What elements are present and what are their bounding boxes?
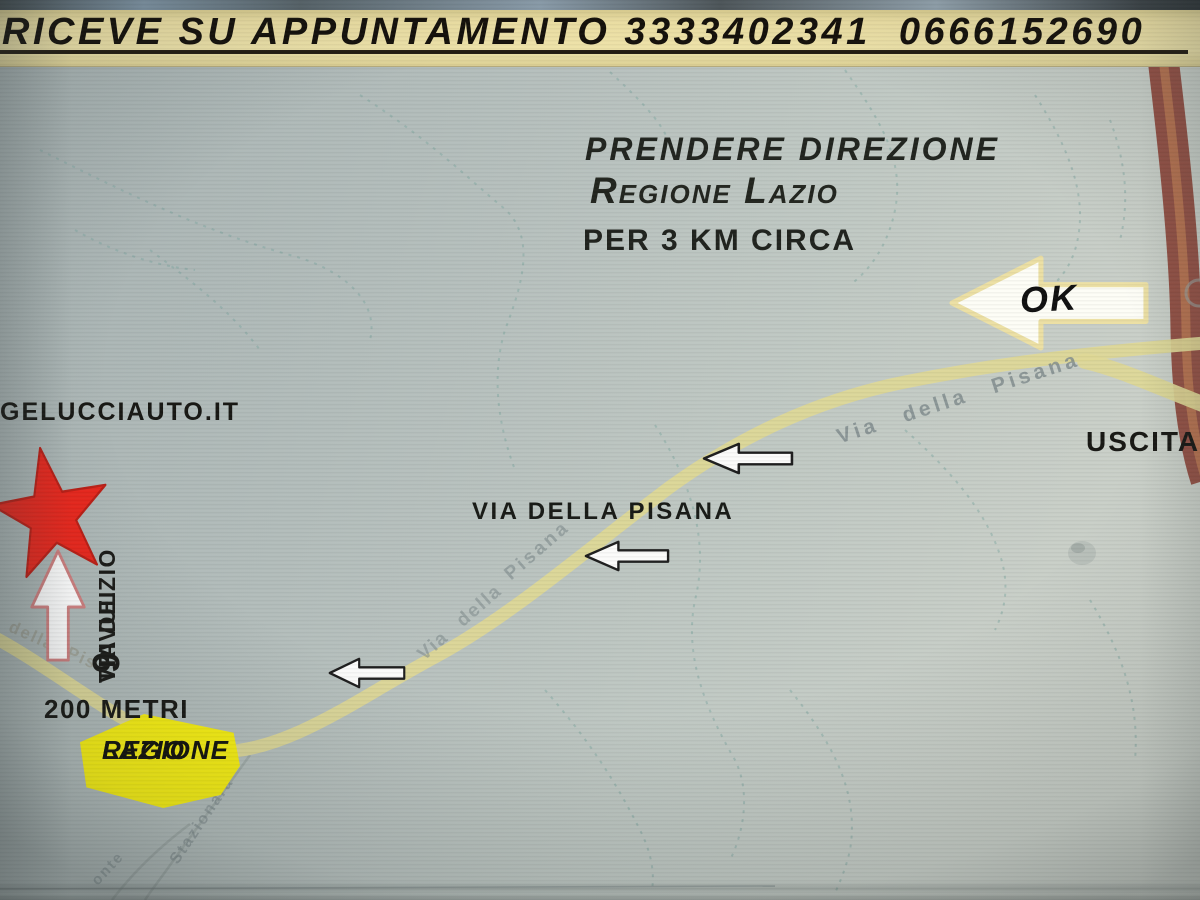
banner-underline: [0, 50, 1188, 54]
direction-line3: PER 3 KM CIRCA: [583, 224, 856, 258]
badge-line2: LAZIO: [102, 735, 185, 766]
direction-line1: PRENDERE DIREZIONE: [585, 131, 1000, 168]
map-symbol-smudge-core: [1071, 543, 1085, 553]
distance-label: 200 METRI: [44, 694, 189, 725]
uscita-label: USCITA: [1086, 426, 1200, 458]
street-number: 9: [93, 652, 122, 683]
via-dei-trivulzio-vertical-label: VIA DEI TRIVULZIO9: [93, 463, 161, 683]
website-label: GELUCCIAUTO.IT: [0, 398, 240, 427]
appointment-banner-text: RICEVE SU APPUNTAMENTO 3333402341 066615…: [2, 11, 1200, 54]
ok-arrow: OK: [948, 252, 1150, 352]
photo-bottom-edge: [0, 882, 1200, 900]
map-photo: Via della Pisana Pisana Via della della …: [0, 0, 1200, 900]
ok-label: OK: [1019, 277, 1079, 322]
direction-line2: Regione Lazio: [590, 170, 839, 212]
via-della-pisana-label: VIA DELLA PISANA: [472, 498, 734, 526]
appointment-banner: RICEVE SU APPUNTAMENTO 3333402341 066615…: [0, 10, 1200, 67]
photo-top-edge: [0, 0, 1200, 10]
